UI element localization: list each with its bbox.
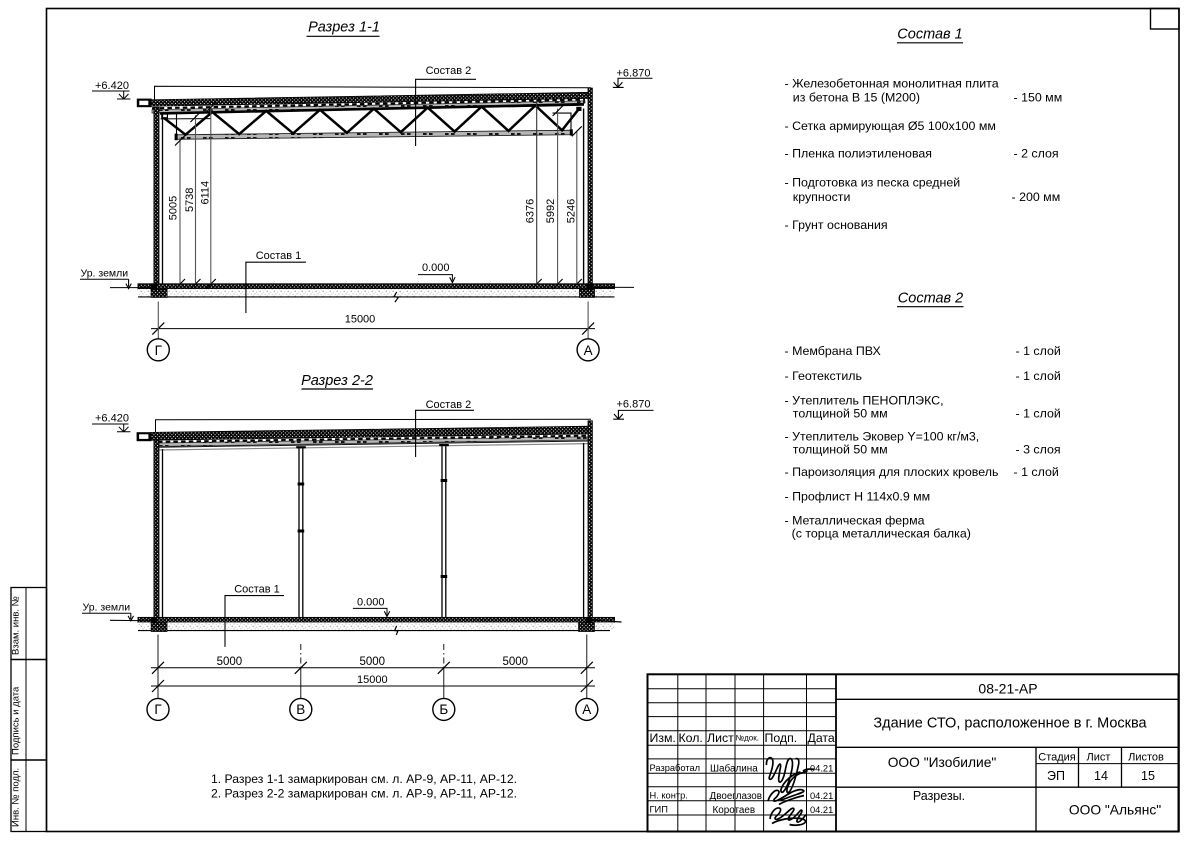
svg-text:- Металлическая ферма: - Металлическая ферма [785,513,925,527]
svg-text:5000: 5000 [217,656,243,668]
svg-text:5005: 5005 [168,196,180,220]
svg-text:5000: 5000 [360,656,386,668]
svg-text:№док.: №док. [736,734,759,743]
svg-text:Инв. № подл.: Инв. № подл. [11,768,22,827]
svg-text:- Мембрана ПВХ: - Мембрана ПВХ [785,344,881,358]
svg-text:2. Разрез 2-2 замаркирован см.: 2. Разрез 2-2 замаркирован см. л. АР-9, … [211,787,517,801]
svg-text:Подп.: Подп. [765,731,798,745]
svg-text:Ур. земли: Ур. земли [81,268,129,280]
svg-text:А: А [582,702,591,717]
svg-text:- Утеплитель ПЕНОПЛЭКС,: - Утеплитель ПЕНОПЛЭКС, [785,394,944,408]
svg-text:Г: Г [154,702,162,717]
svg-text:Стадия: Стадия [1038,751,1076,763]
svg-text:0.000: 0.000 [422,262,450,274]
svg-text:- Сетка армирующая Ø5 100х100: - Сетка армирующая Ø5 100х100 мм [785,119,996,133]
svg-text:- 1 слой: - 1 слой [1014,465,1059,479]
svg-text:Состав 1: Состав 1 [234,584,280,596]
svg-text:ООО "Изобилие": ООО "Изобилие" [888,755,997,770]
svg-text:Двоеглазов: Двоеглазов [710,791,763,802]
svg-text:- 200 мм: - 200 мм [1012,190,1061,204]
svg-text:Лист: Лист [1087,751,1111,763]
svg-text:А: А [584,343,593,358]
svg-text:+6.420: +6.420 [95,413,129,425]
svg-text:ООО "Альянс": ООО "Альянс" [1069,803,1161,818]
svg-text:- 150 мм: - 150 мм [1014,91,1063,105]
svg-text:0.000: 0.000 [357,597,385,609]
svg-text:Дата: Дата [808,731,835,745]
svg-text:04.21: 04.21 [810,791,833,801]
svg-text:Здание СТО, расположенное в г.: Здание СТО, расположенное в г. Москва [873,716,1147,732]
svg-text:- Утеплитель Эковер Y=100 кг/м: - Утеплитель Эковер Y=100 кг/м3, [785,429,980,443]
svg-text:+6.420: +6.420 [95,80,129,92]
svg-text:Взам. инв. №: Взам. инв. № [11,596,22,655]
svg-text:- 1 слой: - 1 слой [1016,407,1061,421]
svg-text:Разрезы.: Разрезы. [913,789,965,803]
svg-text:- Железобетонная монолитная п: - Железобетонная монолитная плита [785,77,999,91]
svg-text:В: В [296,702,305,717]
svg-text:- 2 слоя: - 2 слоя [1014,147,1059,161]
svg-text:Г: Г [155,343,163,358]
svg-text:из бетона В 15 (М200): из бетона В 15 (М200) [793,91,920,105]
svg-text:+6.870: +6.870 [617,68,651,80]
svg-text:Шабалина: Шабалина [710,763,758,774]
svg-text:Кол.: Кол. [679,731,703,745]
svg-text:15000: 15000 [357,674,388,686]
svg-text:6114: 6114 [200,181,212,205]
svg-text:+6.870: +6.870 [617,399,651,411]
svg-text:Состав 2: Состав 2 [426,399,472,411]
svg-text:Н. контр.: Н. контр. [650,791,688,801]
svg-text:толщиной 50 мм: толщиной 50 мм [793,442,888,456]
svg-text:5992: 5992 [545,199,557,223]
svg-text:- Пароизоляция для плоских кро: - Пароизоляция для плоских кровель [785,465,999,479]
svg-text:- Подготовка из песка средней: - Подготовка из песка средней [785,176,961,190]
svg-text:6376: 6376 [524,199,536,223]
svg-text:Состав 1: Состав 1 [897,27,962,43]
svg-text:ЭП: ЭП [1047,769,1065,783]
svg-text:Состав 1: Состав 1 [256,250,302,262]
svg-text:- Пленка полиэтиленовая: - Пленка полиэтиленовая [785,147,933,161]
svg-text:ГИП: ГИП [650,805,668,815]
svg-text:- 1 слой: - 1 слой [1016,344,1061,358]
svg-text:5000: 5000 [503,656,529,668]
svg-text:5246: 5246 [565,199,577,223]
svg-text:Листов: Листов [1128,751,1164,763]
svg-text:Лист: Лист [707,731,734,745]
svg-text:Состав 2: Состав 2 [898,291,963,307]
svg-text:Ур. земли: Ур. земли [83,602,131,614]
svg-text:Подпись и дата: Подпись и дата [11,686,22,755]
svg-text:Изм.: Изм. [650,731,676,745]
svg-text:15000: 15000 [345,314,376,326]
svg-text:04.21: 04.21 [810,805,833,815]
svg-text:1. Разрез 1-1 замаркирован см.: 1. Разрез 1-1 замаркирован см. л. АР-9, … [211,772,517,786]
svg-text:- Геотекстиль: - Геотекстиль [785,369,862,383]
svg-text:- Профлист Н 114х0.9 мм: - Профлист Н 114х0.9 мм [785,489,931,503]
svg-text:Состав 2: Состав 2 [426,65,472,77]
svg-text:(с торца металлическая балка): (с торца металлическая балка) [792,527,971,541]
svg-text:Разрез 2-2: Разрез 2-2 [301,373,373,389]
svg-text:крупности: крупности [793,190,851,204]
svg-text:14: 14 [1094,769,1108,783]
svg-text:5738: 5738 [184,188,196,212]
svg-text:15: 15 [1141,769,1155,783]
svg-text:- 3 слоя: - 3 слоя [1016,442,1061,456]
svg-text:Разработал: Разработал [650,763,701,773]
svg-text:толщиной 50 мм: толщиной 50 мм [793,407,888,421]
svg-text:Б: Б [439,702,448,717]
svg-text:- 1 слой: - 1 слой [1016,369,1061,383]
svg-text:- Грунт основания: - Грунт основания [785,218,888,232]
svg-text:08-21-АР: 08-21-АР [978,681,1037,697]
svg-text:Коротаев: Коротаев [713,805,756,816]
svg-text:Разрез 1-1: Разрез 1-1 [308,20,380,36]
